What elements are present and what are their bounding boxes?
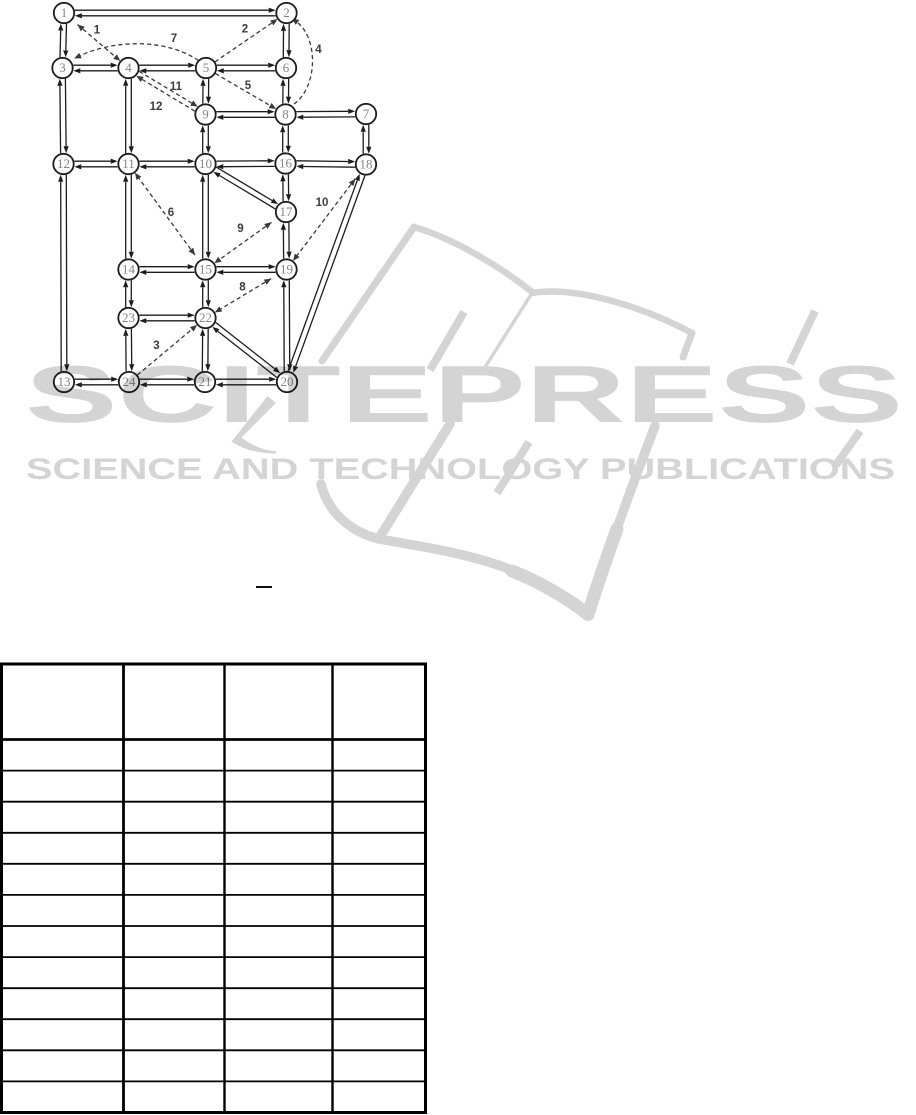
svg-text:12: 12 [150,101,163,113]
svg-text:10: 10 [316,197,329,209]
svg-text:5: 5 [245,80,252,92]
svg-text:7: 7 [363,106,370,121]
svg-text:SCITEPRESS: SCITEPRESS [25,350,903,440]
svg-text:10: 10 [199,156,212,171]
svg-text:8: 8 [282,107,289,122]
svg-text:12: 12 [57,156,70,171]
svg-text:23: 23 [122,310,135,325]
svg-text:SCIENCE AND TECHNOLOGY PUBLICA: SCIENCE AND TECHNOLOGY PUBLICATIONS [26,453,895,486]
svg-text:11: 11 [122,156,135,171]
svg-text:9: 9 [237,223,243,235]
svg-text:9: 9 [202,107,209,122]
svg-text:5: 5 [203,60,210,75]
svg-text:2: 2 [242,24,248,36]
svg-text:8: 8 [239,282,246,294]
svg-text:6: 6 [168,207,174,219]
svg-text:3: 3 [59,60,66,75]
svg-text:2: 2 [283,5,290,20]
svg-text:7: 7 [171,33,177,45]
svg-text:4: 4 [125,60,132,75]
svg-text:6: 6 [283,60,290,75]
svg-text:17: 17 [280,204,294,219]
svg-text:11: 11 [170,81,183,93]
svg-text:19: 19 [280,262,293,277]
svg-text:15: 15 [199,262,212,277]
svg-text:16: 16 [279,156,293,171]
svg-text:1: 1 [61,5,68,20]
svg-text:22: 22 [199,310,212,325]
svg-text:18: 18 [360,157,373,172]
svg-text:1: 1 [94,25,101,37]
svg-text:4: 4 [315,44,322,56]
svg-text:14: 14 [122,262,136,277]
